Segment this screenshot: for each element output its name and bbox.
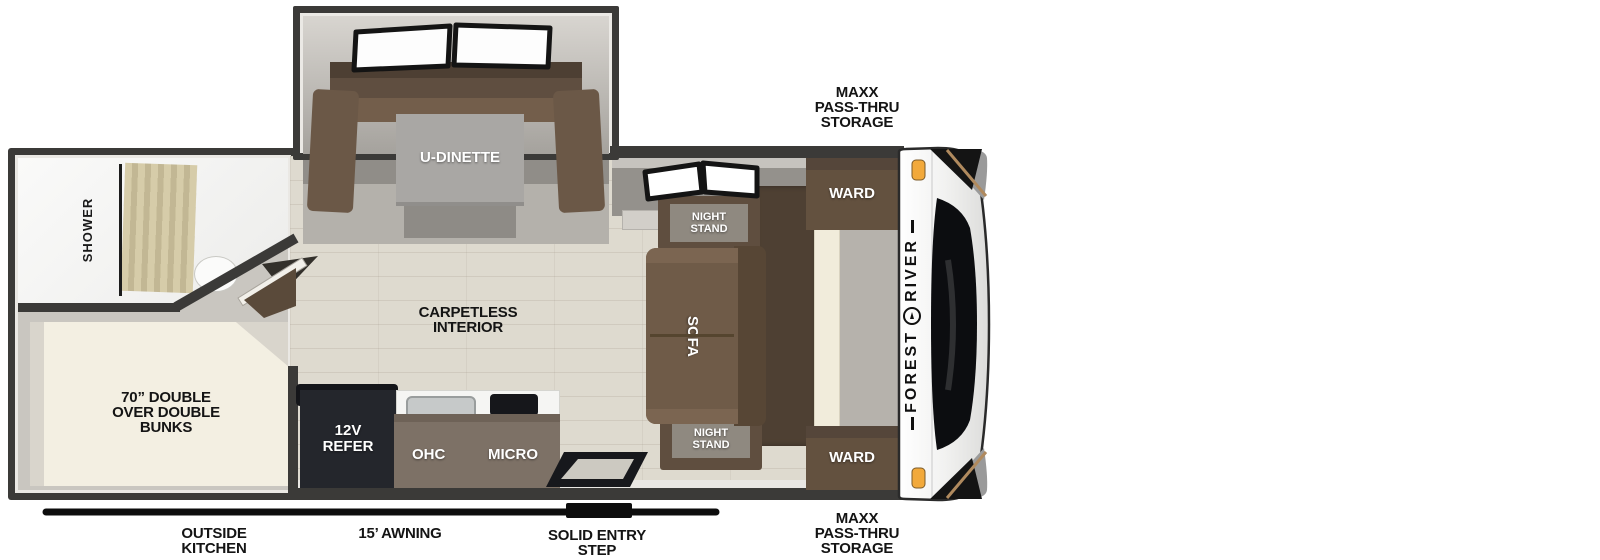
overlay-graphics <box>0 0 1600 560</box>
entry-step <box>566 503 632 518</box>
brand-dash-bottom <box>911 417 914 430</box>
brand-word-river: RIVER <box>903 238 921 302</box>
marker-light-top <box>912 160 925 180</box>
brand-block: RIVER FOREST <box>896 192 928 458</box>
bunks-label: 70” DOUBLE OVER DOUBLE BUNKS <box>86 390 246 435</box>
awning-label: 15’ AWNING <box>320 526 480 541</box>
storage-label-bottom: MAXX PASS-THRU STORAGE <box>777 511 937 556</box>
carpetless-label: CARPETLESS INTERIOR <box>388 305 548 335</box>
bed-window-pane-right <box>703 163 757 196</box>
floorplan-canvas: U-DINETTE WARD WARD NIGHT STAND NIGHT ST… <box>0 0 1600 560</box>
slideout-window-pane-left <box>354 26 450 70</box>
marker-light-bottom <box>912 468 925 488</box>
brand-dash-top <box>911 220 914 233</box>
storage-label-top: MAXX PASS-THRU STORAGE <box>777 85 937 130</box>
forest-river-logo-icon <box>903 307 921 325</box>
brand-word-forest: FOREST <box>903 330 921 413</box>
slideout-window-pane-right <box>454 25 550 67</box>
outside-kitchen-label: OUTSIDE KITCHEN <box>134 526 294 556</box>
bed-window-pane-left <box>645 164 702 199</box>
entry-step-label: SOLID ENTRY STEP <box>517 528 677 558</box>
